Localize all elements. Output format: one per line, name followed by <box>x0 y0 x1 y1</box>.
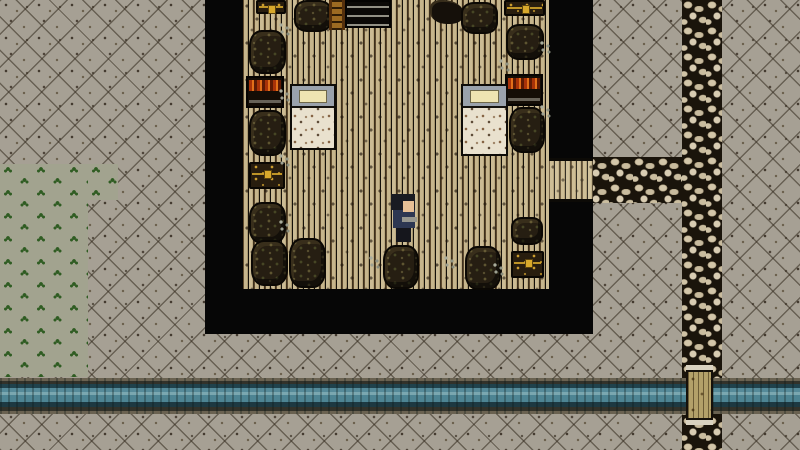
stone-path-horizontal <box>585 157 682 203</box>
floor-glint-4 <box>539 104 553 120</box>
barrel-center <box>383 245 419 289</box>
floor-glint-10 <box>368 255 380 269</box>
grass-patch <box>0 164 88 377</box>
chest-bottom-right <box>511 251 544 278</box>
building-wall-bottom <box>205 289 593 334</box>
barrel-left-2 <box>249 110 286 156</box>
floor-glint-1 <box>278 22 292 38</box>
barrel-left-4 <box>251 240 288 286</box>
building-wall-left <box>205 0 243 334</box>
game-viewport[interactable] <box>0 0 800 450</box>
building-wall-right-top <box>549 0 593 158</box>
floor-glint-7 <box>278 219 292 235</box>
floor-glint-3 <box>539 40 553 56</box>
building-wall-right-bottom <box>549 202 593 290</box>
doorway-floor <box>549 158 593 202</box>
barrel-top-1 <box>294 0 332 32</box>
floor-glint-9 <box>492 262 504 276</box>
floor-glint-2 <box>278 88 292 104</box>
river <box>0 378 800 414</box>
player-arm <box>402 217 417 222</box>
bed-left <box>290 84 336 150</box>
floor-glint-6 <box>278 153 292 169</box>
crate-shelf <box>345 0 391 28</box>
floor-glint-8 <box>443 255 455 269</box>
chest-top-left <box>256 0 286 14</box>
player-face <box>403 201 414 212</box>
grass-patch-step <box>88 164 118 200</box>
barrel-top-2 <box>461 2 498 34</box>
wooden-bridge <box>686 370 713 420</box>
barrel-left-5 <box>289 238 326 288</box>
weapon-shelf-right <box>505 74 543 106</box>
barrel-right-3 <box>511 217 543 245</box>
bed-right <box>461 84 508 156</box>
floor-glint-5 <box>498 58 512 74</box>
chest-top-right <box>504 0 545 16</box>
player-character <box>389 194 417 246</box>
ladder <box>329 0 345 30</box>
player-legs <box>396 228 411 242</box>
